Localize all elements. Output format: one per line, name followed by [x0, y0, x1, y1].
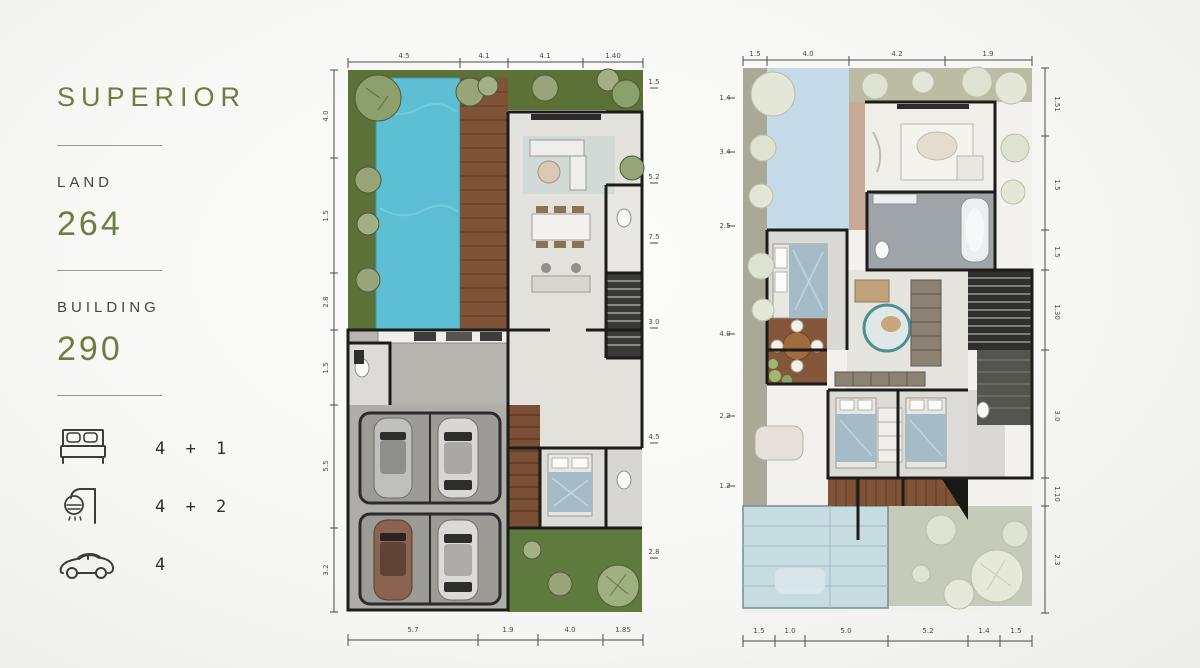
dim-label: 1.4 [719, 94, 731, 102]
bathroom-1 [606, 185, 642, 273]
pool-deck [460, 78, 508, 330]
divider [57, 145, 162, 146]
dim-label: 3.2 [322, 564, 330, 575]
building-value: 290 [57, 330, 277, 369]
dim-label: 1.5 [753, 627, 764, 635]
shower-icon [57, 483, 119, 532]
dim-label: 1.2 [719, 482, 730, 490]
bedrooms-count: 4 + 1 [119, 439, 231, 459]
land-value: 264 [57, 205, 277, 244]
upper-floor-plan: 1.5 4.0 4.2 1.9 1.5 1.0 5.0 5.2 1.4 1.5 … [715, 28, 1065, 658]
wardrobe [911, 280, 941, 366]
bed-4 [906, 398, 946, 468]
dim-label: 1.5 [749, 50, 760, 58]
land-label: LAND [57, 174, 277, 191]
bed-icon [57, 426, 119, 473]
dim-label: 4.0 [719, 330, 730, 338]
bench [855, 280, 889, 302]
dim-label: 5.0 [840, 627, 851, 635]
bathrooms-count: 4 + 2 [119, 497, 231, 517]
island [532, 276, 590, 292]
dim-label: 1.9 [982, 50, 993, 58]
dim-label: 5.7 [407, 626, 418, 634]
dim-label: 2.3 [1053, 554, 1061, 565]
sofa [530, 140, 584, 156]
divider [57, 395, 162, 396]
dim-label: 4.1 [478, 52, 489, 60]
cars-row: 4 [57, 536, 277, 594]
dim-label: 1.30 [1053, 304, 1061, 320]
dim-label: 1.9 [502, 626, 513, 634]
dim-label: 1.5 [648, 78, 659, 86]
dim-label: 4.5 [648, 433, 659, 441]
dim-label: 4.0 [564, 626, 575, 634]
bathtub [961, 198, 989, 262]
tv-console [897, 104, 969, 109]
cars-count: 4 [119, 555, 170, 575]
dim-label: 1.5 [1053, 246, 1061, 257]
dim-label: 3.4 [719, 148, 731, 156]
bedrooms-row: 4 + 1 [57, 420, 277, 478]
bed-3 [836, 398, 876, 468]
dim-label: 3.0 [648, 318, 659, 326]
dim-label: 1.85 [615, 626, 631, 634]
brand-panel: SUPERIOR LAND 264 BUILDING 290 4 + 1 [57, 82, 277, 594]
divider [57, 270, 162, 271]
dim-label: 3.0 [1053, 410, 1061, 421]
bed-2 [773, 244, 827, 318]
dim-label: 1.5 [1053, 179, 1061, 190]
page: SUPERIOR LAND 264 BUILDING 290 4 + 1 [0, 0, 1200, 668]
plan-title: SUPERIOR [57, 82, 277, 113]
dim-label: 5.2 [648, 173, 659, 181]
dim-label: 5.2 [922, 627, 933, 635]
dim-label: 1.5 [322, 362, 330, 373]
round-feature [864, 305, 910, 351]
building-label: BUILDING [57, 299, 277, 316]
dim-label: 1.5 [322, 210, 330, 221]
dim-label: 2.8 [322, 296, 330, 307]
dim-label: 4.0 [802, 50, 813, 58]
dim-label: 4.1 [539, 52, 550, 60]
dining-table [532, 214, 590, 240]
dim-label: 7.5 [648, 233, 659, 241]
dim-label: 2.5 [719, 222, 730, 230]
glass-canopy [743, 506, 888, 608]
inner-stairs [508, 405, 540, 528]
dim-label: 5.5 [322, 460, 330, 471]
dim-label: 1.51 [1053, 96, 1061, 112]
dim-label: 2.8 [648, 548, 659, 556]
dim-label: 2.2 [719, 412, 730, 420]
ground-floor-plan: 4.5 4.1 4.1 1.40 5.7 1.9 4.0 1.85 4.0 1.… [318, 28, 663, 658]
dim-label: 4.2 [891, 50, 902, 58]
closet-row [835, 372, 925, 386]
bed [548, 454, 592, 516]
dim-label: 4.0 [322, 110, 330, 121]
dim-label: 4.5 [398, 52, 409, 60]
feature-list: 4 + 1 4 + 2 [57, 420, 277, 594]
dim-label: 1.0 [784, 627, 795, 635]
lounge-chair [755, 426, 803, 460]
dim-label: 1.10 [1053, 486, 1061, 502]
dim-label: 1.4 [978, 627, 990, 635]
dim-label: 1.40 [605, 52, 621, 60]
tv-console [531, 114, 601, 120]
car-icon [57, 543, 119, 588]
bathrooms-row: 4 + 2 [57, 478, 277, 536]
dim-label: 1.5 [1010, 627, 1021, 635]
